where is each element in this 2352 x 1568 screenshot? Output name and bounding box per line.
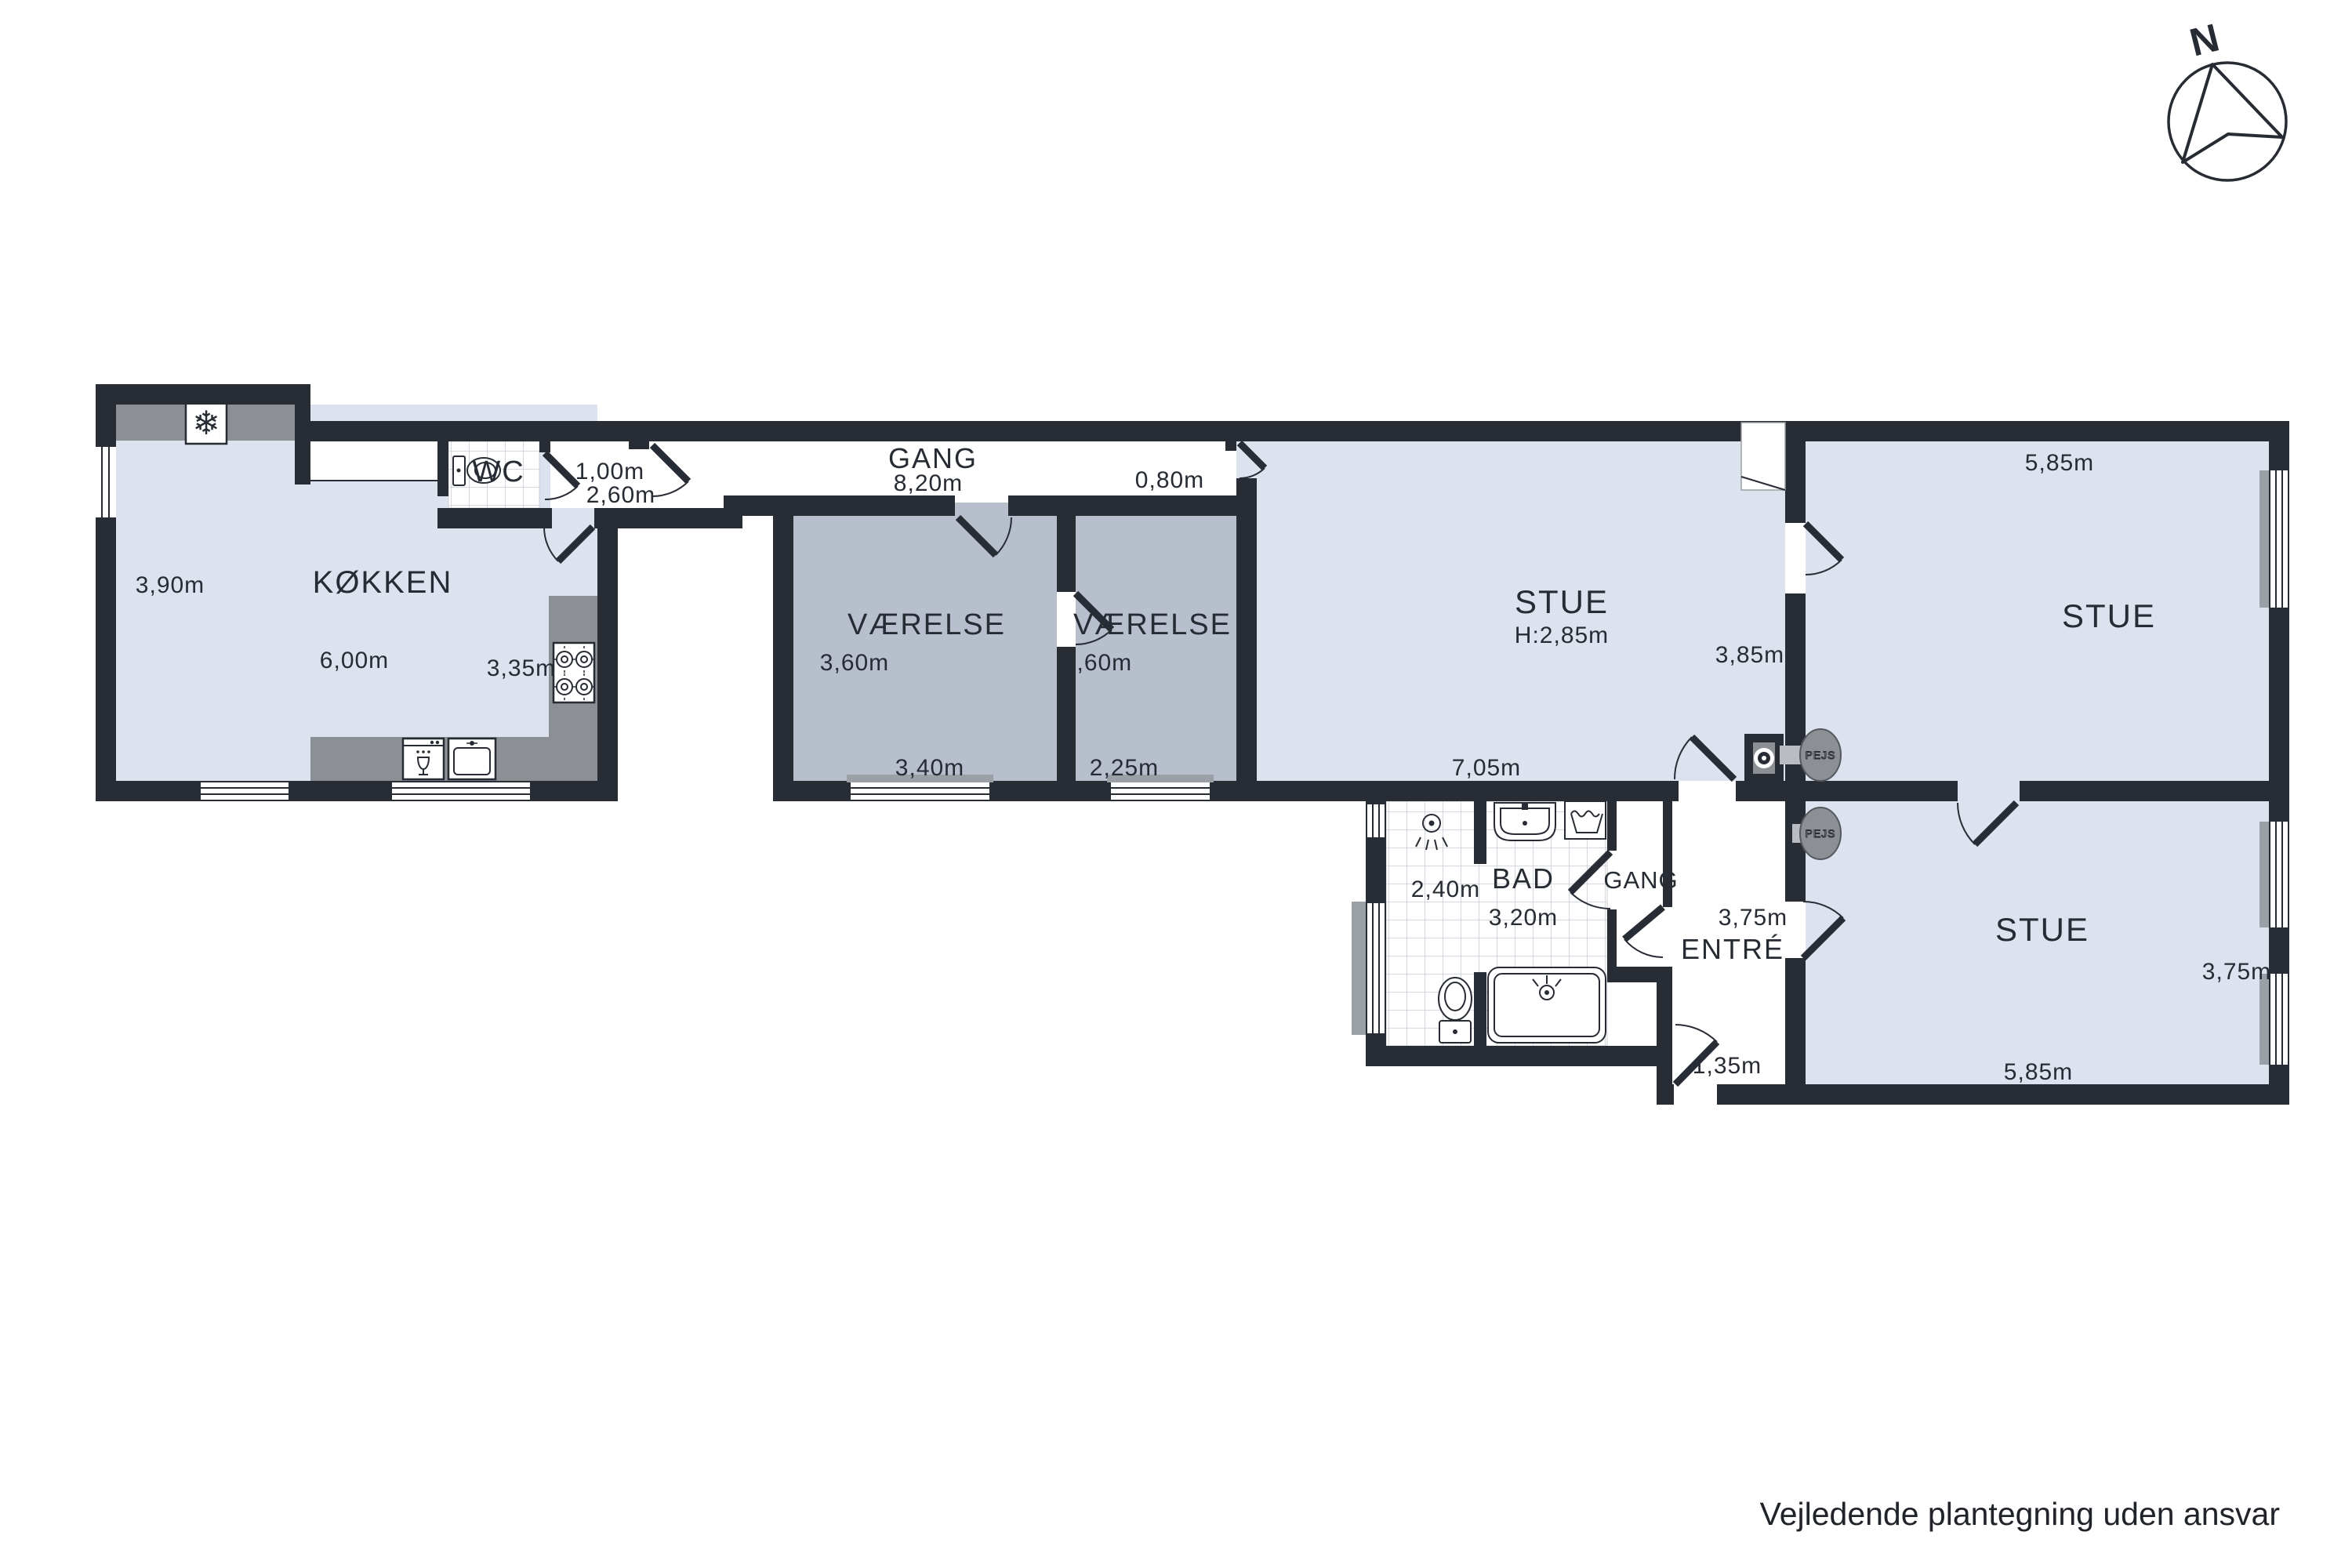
wall-under-hallway: [1607, 967, 1672, 982]
dim-wc-2: 2,60m: [586, 482, 655, 508]
window-niche: [1741, 423, 1785, 490]
dim-bedroom1-left: 3,60m: [820, 650, 889, 676]
dim-corridor-end: 0,80m: [1135, 467, 1204, 493]
kitchen-niche: [310, 441, 437, 480]
wall-bath-right-bottom: [1607, 909, 1617, 967]
dim-bedroom1-bottom: 3,40m: [895, 755, 964, 781]
wall-bedrooms-divider-top: [1057, 516, 1076, 592]
bath-sink-icon: [1494, 803, 1555, 840]
bedroom1-floor: [793, 503, 1057, 781]
window-kitchen-bottom-2: [392, 782, 530, 800]
wall-wc-right-stub: [539, 441, 550, 452]
dim-kitchen-right: 3,35m: [487, 655, 556, 681]
wall-entry-right-bottom: [1785, 958, 1806, 1084]
dim-living-se-bottom: 5,85m: [2004, 1059, 2073, 1085]
wall-bedroom2-right: [1236, 478, 1257, 781]
dim-kitchen-bottom: 6,00m: [320, 648, 389, 673]
wall-bath-stub-bottom: [1474, 972, 1486, 1046]
chimney-icon: [1744, 734, 1784, 782]
wall-bedroom1-left: [773, 495, 793, 781]
living-ne-floor: [1806, 441, 2269, 781]
floorplan-page: ❄: [0, 0, 2352, 1568]
room-label-corridor: GANG: [888, 442, 978, 474]
wall-kitchen-step: [295, 384, 310, 485]
wall-passage-stub: [1225, 441, 1236, 451]
svg-text:❄: ❄: [192, 404, 220, 442]
wall-stue-divider-top: [1785, 441, 1806, 523]
door-hallway-entry: [1624, 907, 1663, 957]
window-living-se-2: [2259, 974, 2288, 1065]
bath-toilet-icon: [1439, 978, 1472, 1043]
disclaimer-text: Vejledende plantegning uden ansvar: [1760, 1496, 2280, 1532]
room-label-living-ne: STUE: [2062, 597, 2156, 634]
kitchen-sink-icon: [448, 739, 495, 779]
wall-entry-left: [1657, 982, 1672, 1084]
dim-bedroom2-left: 3,60m: [1063, 650, 1132, 676]
room-label-living-main: STUE: [1515, 583, 1609, 620]
window-bath-small: [1367, 804, 1385, 837]
bathtub-icon: [1488, 967, 1606, 1043]
dim-kitchen-left: 3,90m: [136, 572, 205, 598]
room-label-wc: WC: [472, 456, 524, 488]
wall-bath-right-top: [1607, 801, 1617, 851]
room-label-bath: BAD: [1492, 862, 1555, 895]
dim-bath-bottom: 3,20m: [1489, 905, 1558, 931]
room-label-entry: ENTRÉ: [1681, 933, 1784, 965]
wall-kitchen-right: [597, 508, 618, 801]
stove-icon: [554, 643, 595, 702]
window-kitchen-left: [96, 447, 116, 517]
wall-kitchen-left: [96, 384, 116, 801]
dim-bedroom2-bottom: 2,25m: [1090, 755, 1159, 781]
entry-door-opening: [1674, 1084, 1717, 1105]
wall-bath-bottom: [1366, 1046, 1672, 1066]
fridge-icon: ❄: [186, 401, 227, 444]
dim-living-ne-top: 5,85m: [2025, 450, 2094, 476]
dim-entry-door: 1,35m: [1693, 1053, 1762, 1079]
dim-bath-left: 2,40m: [1411, 877, 1480, 902]
wall-wc-left: [437, 441, 448, 496]
compass-icon: N: [2169, 15, 2286, 180]
compass-north-label: N: [2185, 15, 2223, 64]
window-kitchen-bottom-1: [201, 782, 289, 800]
window-bath-large: [1352, 902, 1385, 1035]
wall-wc-bottom: [437, 508, 552, 528]
wall-hall-right-stub: [629, 441, 649, 449]
window-living-ne: [2259, 470, 2288, 608]
dishwasher-icon: [403, 739, 444, 779]
room-label-bedroom1: VÆRELSE: [848, 608, 1006, 641]
dim-living-se-right: 3,75m: [2202, 959, 2271, 985]
dim-living-main-height: H:2,85m: [1515, 622, 1609, 648]
room-label-kitchen: KØKKEN: [313, 565, 453, 600]
dim-corridor-length: 8,20m: [894, 470, 963, 496]
wall-bottom-southeast: [1657, 1084, 2289, 1105]
wall-top-main: [310, 421, 2289, 441]
wall-entry-right-top: [1785, 801, 1806, 902]
room-label-bedroom2: VÆRELSE: [1073, 608, 1232, 641]
room-label-living-se: STUE: [1995, 911, 2089, 948]
wall-bottom-west: [96, 781, 618, 801]
wall-kitchen-top: [96, 384, 310, 405]
wall-corridor-step: [724, 495, 742, 528]
dim-living-main-bottom: 7,05m: [1452, 755, 1521, 781]
dim-entry-top: 3,75m: [1719, 905, 1788, 931]
window-living-se-1: [2259, 822, 2288, 927]
wall-bottom-east: [773, 781, 2289, 801]
wall-corridor-bottom-b2: [1008, 495, 1236, 516]
dim-living-main-wall: 3,85m: [1715, 642, 1784, 668]
room-label-hallway: GANG: [1603, 866, 1678, 894]
laundry-icon: [1565, 801, 1606, 839]
wall-bath-stub-top: [1474, 801, 1486, 864]
fireplace-lower-label: PEJS: [1805, 827, 1835, 840]
dim-wc-1: 1,00m: [575, 459, 644, 485]
fireplace-upper-label: PEJS: [1805, 749, 1835, 761]
floorplan-drawing: ❄: [0, 0, 2352, 1568]
bedroom2-floor: [1076, 503, 1236, 781]
